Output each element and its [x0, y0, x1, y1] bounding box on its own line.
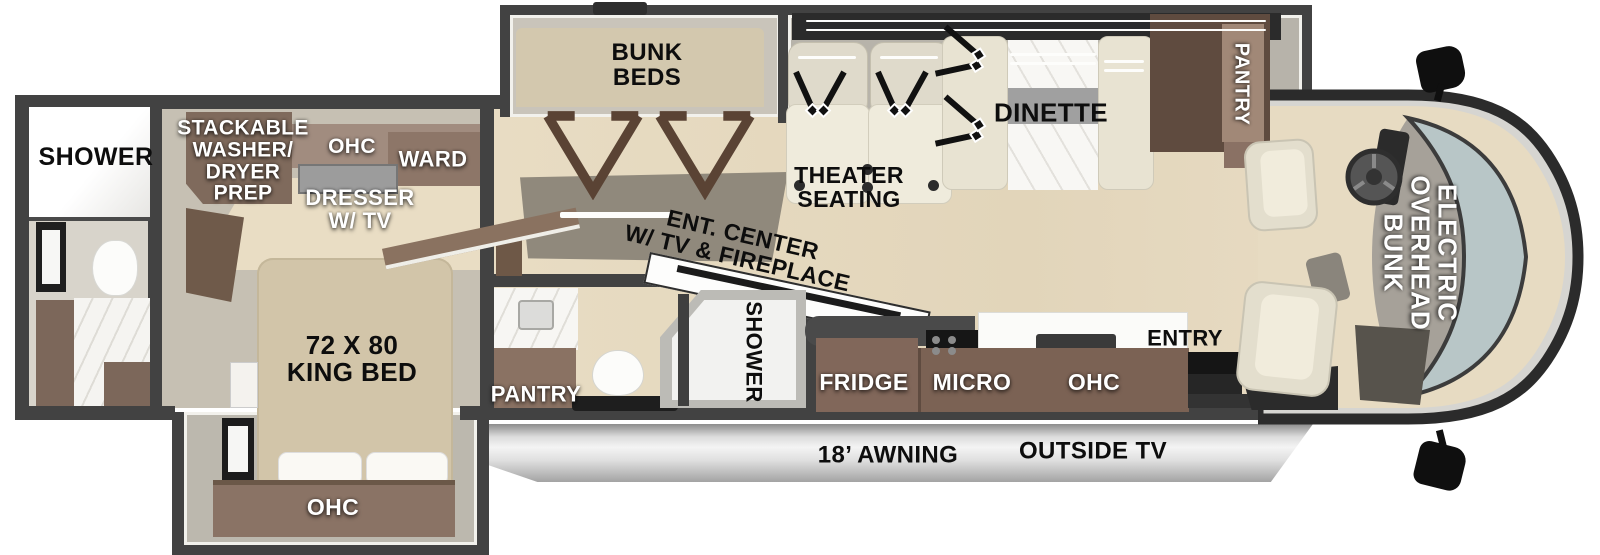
dinette-table-gray-band: [1008, 88, 1098, 124]
king-bed: [257, 258, 453, 482]
entry-steps-3: [1188, 394, 1258, 408]
fridge-cabinet: [816, 338, 918, 412]
bedroom-slide-window-pane: [228, 426, 248, 472]
passenger-seat-cushion: [1254, 293, 1320, 381]
mid-toilet: [592, 350, 644, 396]
bunk-frame-left: [540, 108, 646, 200]
foot-ohc-cabinet: [213, 480, 455, 537]
rv-floorplan-diagram: 18’ AWNING OUTSIDE TV BUNK BEDS SHOWER: [0, 0, 1600, 555]
rear-bath-divider-wall: [148, 95, 162, 420]
pantry-cabinet-face: [1222, 24, 1264, 142]
recline-mark-left: [792, 70, 848, 120]
entry-steps: [1188, 352, 1242, 374]
mid-pantry-cabinet: [494, 348, 576, 408]
bunk-frame-right: [652, 108, 758, 200]
rear-vanity-cabinet: [36, 300, 74, 406]
mid-pantry-sink: [518, 300, 554, 330]
bedroom-divider-wall: [480, 95, 494, 420]
rear-bath-window-pane: [42, 230, 60, 284]
driver-seat-cushion: [1260, 149, 1308, 218]
bunk-slide-handle: [593, 2, 647, 15]
awning-bar: [470, 424, 1313, 482]
dresser-tv: [298, 164, 398, 194]
rear-toilet: [92, 240, 138, 296]
entry-steps-2: [1188, 374, 1242, 394]
recline-mark-right: [874, 70, 930, 120]
bed-nightstand: [230, 362, 258, 408]
washer-dryer-cabinet: [186, 112, 292, 204]
bunk-room-cabinet: [496, 240, 522, 276]
bunk-mattress: [516, 28, 764, 107]
rear-vanity-wood-corner: [104, 362, 150, 406]
ward-cabinet: [388, 132, 480, 186]
mid-shower-door-frame: [678, 294, 689, 406]
micro-ohc-band: [918, 348, 1189, 412]
cab-speaker-panel: [1355, 325, 1430, 405]
rear-shower-stall: [29, 107, 150, 221]
exterior-wall-left: [15, 95, 29, 420]
